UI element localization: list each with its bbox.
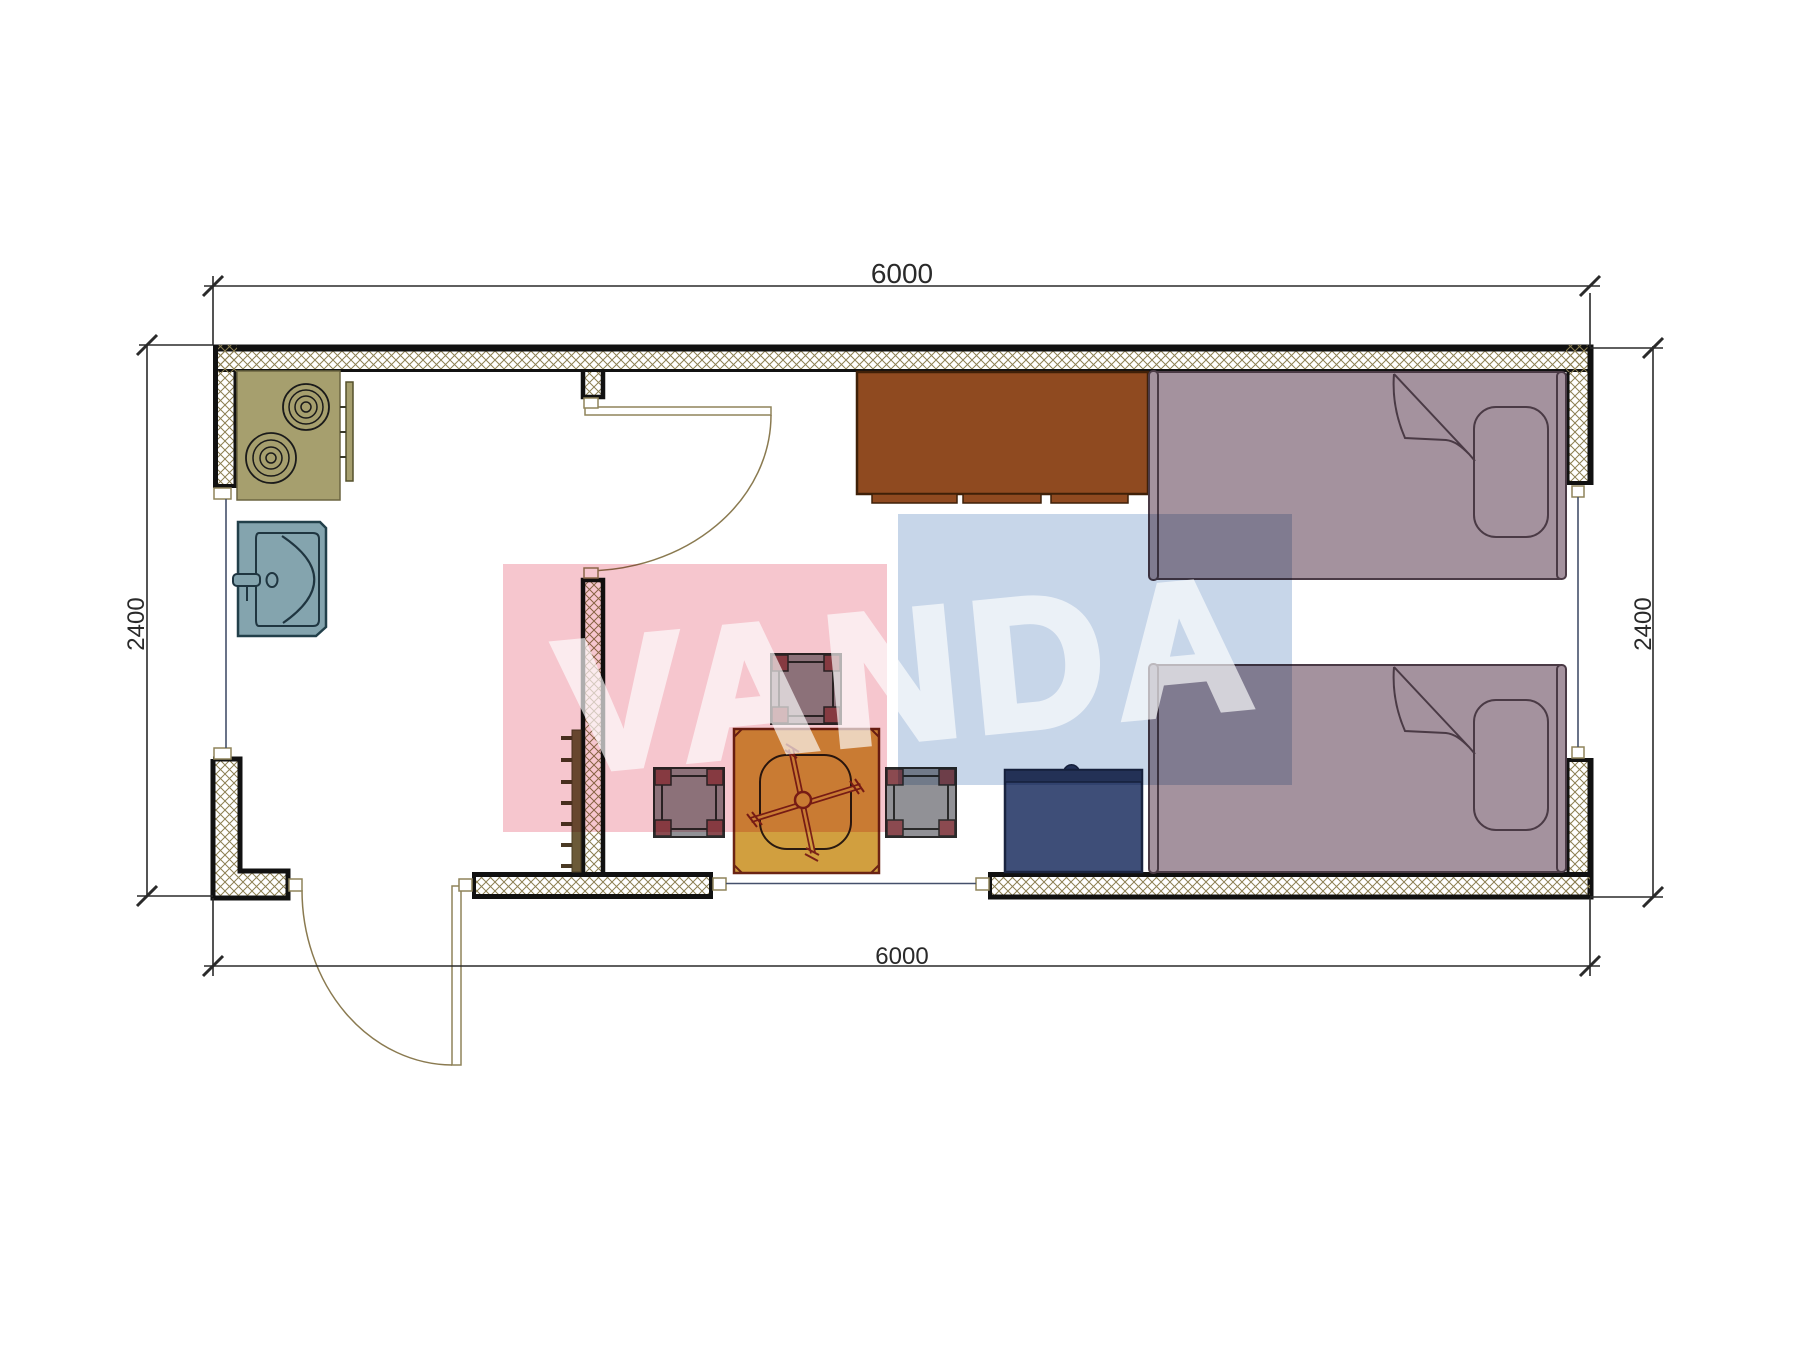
svg-text:2400: 2400 bbox=[123, 597, 150, 650]
svg-text:6000: 6000 bbox=[871, 258, 933, 289]
svg-text:2400: 2400 bbox=[1630, 597, 1657, 650]
svg-text:6000: 6000 bbox=[875, 943, 928, 970]
